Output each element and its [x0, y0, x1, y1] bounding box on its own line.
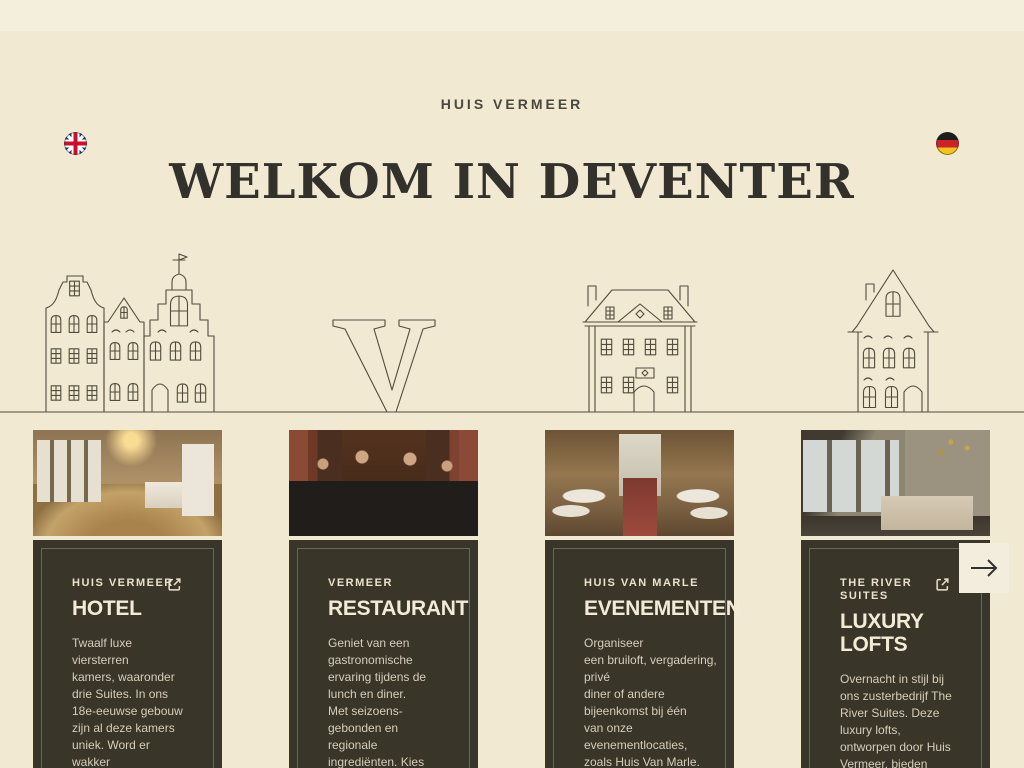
card-label: HUIS VAN MARLE — [584, 577, 728, 590]
carousel-next-button[interactable] — [959, 543, 1009, 593]
card-hotel[interactable]: HUIS VERMEER HOTEL Twaalf luxe viersterr… — [33, 430, 222, 768]
card-luxury-lofts[interactable]: THE RIVER SUITES LUXURY LOFTS Overnacht … — [801, 430, 990, 768]
deventer-skyline-illustration — [0, 240, 1024, 415]
brand-eyebrow: HUIS VERMEER — [0, 96, 1024, 112]
card-title: EVENEMENTEN — [584, 597, 728, 620]
event-room-photo — [545, 430, 734, 536]
arrow-right-icon — [969, 558, 999, 578]
card-panel: HUIS VERMEER HOTEL Twaalf luxe viersterr… — [33, 540, 222, 768]
page-title: WELKOM IN DEVENTER — [0, 154, 1024, 210]
loft-bedroom-photo — [801, 430, 990, 536]
german-flag-icon[interactable] — [936, 132, 959, 155]
uk-flag-icon[interactable] — [64, 132, 87, 155]
hotel-room-photo — [33, 430, 222, 536]
restaurant-team-photo — [289, 430, 478, 536]
top-band — [0, 0, 1024, 31]
card-label: VERMEER — [328, 577, 472, 590]
card-panel: VERMEER RESTAURANT Geniet van een gastro… — [289, 540, 478, 768]
card-events[interactable]: HUIS VAN MARLE EVENEMENTEN Organiseer ee… — [545, 430, 734, 768]
card-description: Twaalf luxe viersterren kamers, waaronde… — [72, 635, 216, 768]
card-panel: HUIS VAN MARLE EVENEMENTEN Organiseer ee… — [545, 540, 734, 768]
card-description: Overnacht in stijl bij ons zusterbedrijf… — [840, 671, 984, 768]
card-title: RESTAURANT — [328, 597, 472, 620]
card-description: Geniet van een gastronomische ervaring t… — [328, 635, 472, 768]
card-label: HUIS VERMEER — [72, 577, 216, 590]
page: HUIS VERMEER WELKOM IN DEVENTER — [0, 0, 1024, 768]
letter-v — [333, 320, 435, 412]
card-description: Organiseer een bruiloft, vergadering, pr… — [584, 635, 728, 768]
card-restaurant[interactable]: VERMEER RESTAURANT Geniet van een gastro… — [289, 430, 478, 768]
card-title: LUXURY LOFTS — [840, 610, 984, 656]
card-title: HOTEL — [72, 597, 216, 620]
